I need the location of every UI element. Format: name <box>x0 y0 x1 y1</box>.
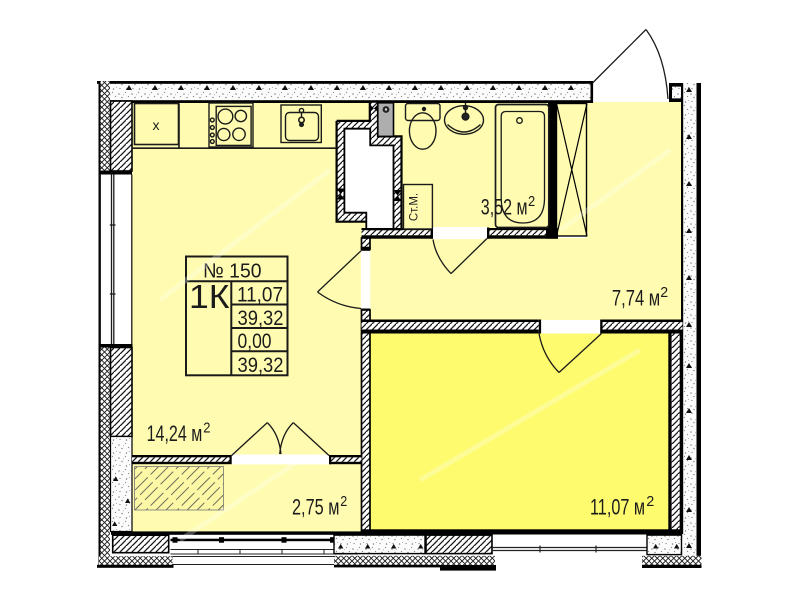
svg-text:2: 2 <box>660 285 668 301</box>
svg-text:39,32: 39,32 <box>238 354 284 377</box>
svg-text:1К: 1К <box>189 278 230 315</box>
svg-text:2: 2 <box>528 194 535 210</box>
svg-text:2,75 м: 2,75 м <box>292 495 339 520</box>
svg-text:11,07 м: 11,07 м <box>590 495 645 520</box>
svg-text:2: 2 <box>203 421 210 437</box>
svg-text:3,52 м: 3,52 м <box>481 195 528 220</box>
svg-text:Ст.М.: Ст.М. <box>409 193 421 221</box>
svg-text:39,32: 39,32 <box>238 307 284 330</box>
svg-text:2: 2 <box>340 494 347 510</box>
svg-text:0,00: 0,00 <box>238 330 272 353</box>
svg-text:х: х <box>153 117 160 133</box>
svg-text:11,07: 11,07 <box>237 284 283 307</box>
svg-text:2: 2 <box>646 494 654 510</box>
svg-text:7,74 м: 7,74 м <box>612 285 660 310</box>
svg-text:14,24 м: 14,24 м <box>147 421 203 446</box>
